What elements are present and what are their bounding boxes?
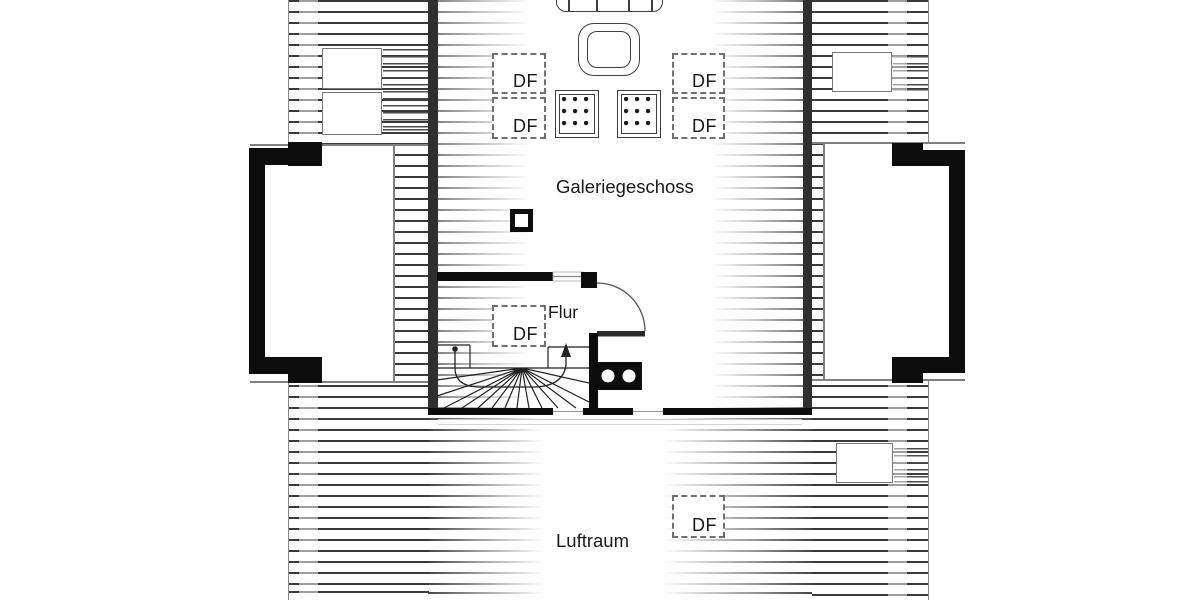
stair-wall — [589, 333, 598, 408]
dormer-outer-wall-right — [892, 357, 923, 383]
roof-window-box — [836, 443, 893, 483]
dormer-outer-wall-left — [249, 148, 265, 374]
roof-window-box — [322, 48, 382, 89]
roof-hatch-right-bottom — [812, 380, 929, 600]
hall-wall — [437, 272, 553, 281]
roof-window-marker: DF — [672, 495, 725, 538]
room-label-gallery: Galeriegeschoss — [556, 176, 694, 198]
scan-glare-band-left — [299, 0, 318, 600]
dormer-wall-line-right-side — [823, 142, 825, 381]
door-jamb — [581, 272, 597, 288]
dormer-outer-wall-left — [288, 357, 322, 383]
window-hatch-left — [383, 48, 428, 135]
dormer-wall-line-left-bottom — [250, 381, 438, 383]
room-label-hallway: Flur — [548, 302, 578, 323]
df-label: DF — [692, 116, 717, 137]
dormer-outer-wall-right — [949, 150, 965, 373]
roof-window-marker: DF — [672, 53, 725, 94]
room-label-void: Luftraum — [556, 530, 629, 552]
door-leaf — [597, 331, 645, 337]
df-label: DF — [513, 116, 538, 137]
void-edge-line — [438, 424, 802, 425]
dormer-outer-wall-right — [892, 143, 923, 166]
roof-window-box — [832, 52, 892, 92]
coffee-table-icon — [578, 23, 640, 76]
chimney-flue — [623, 370, 636, 383]
stool-cushion-dots — [562, 97, 592, 131]
dormer-outer-wall-left — [288, 142, 322, 166]
roof-window-box — [322, 92, 382, 135]
stool-icon — [617, 90, 661, 138]
dormer-wall-line-left-top — [250, 144, 438, 146]
door-swing-icon — [597, 283, 645, 331]
roof-window-marker: DF — [492, 305, 546, 347]
dormer-wall-line-right-bottom — [812, 379, 965, 381]
dormer-outer-wall-right — [920, 150, 965, 166]
stool-icon — [555, 90, 599, 138]
void-edge-line — [438, 419, 802, 420]
df-label: DF — [692, 515, 717, 536]
roof-hatch-fade-void-left — [428, 415, 553, 600]
dormer-wall-line-left-side — [393, 144, 395, 383]
roof-hatch-right-mid — [812, 143, 823, 380]
df-label: DF — [513, 71, 538, 92]
dormer-wall-line-right-top — [812, 142, 965, 144]
chimney-flue — [602, 370, 615, 383]
roof-window-marker: DF — [492, 97, 546, 139]
roof-window-marker: DF — [492, 53, 546, 94]
df-label: DF — [692, 71, 717, 92]
up-arrow-icon — [561, 343, 571, 357]
roof-window-marker: DF — [672, 97, 725, 139]
column-icon — [510, 209, 533, 232]
sofa-icon — [556, 0, 663, 12]
floor-plan-page: { "floor_plan": { "labels": { "gallery":… — [0, 0, 1200, 600]
df-label: DF — [513, 324, 538, 345]
dormer-outer-wall-right — [920, 357, 965, 373]
roof-hatch-left-mid — [393, 145, 428, 383]
stool-cushion-dots — [624, 97, 654, 131]
knee-wall-right — [803, 0, 812, 415]
